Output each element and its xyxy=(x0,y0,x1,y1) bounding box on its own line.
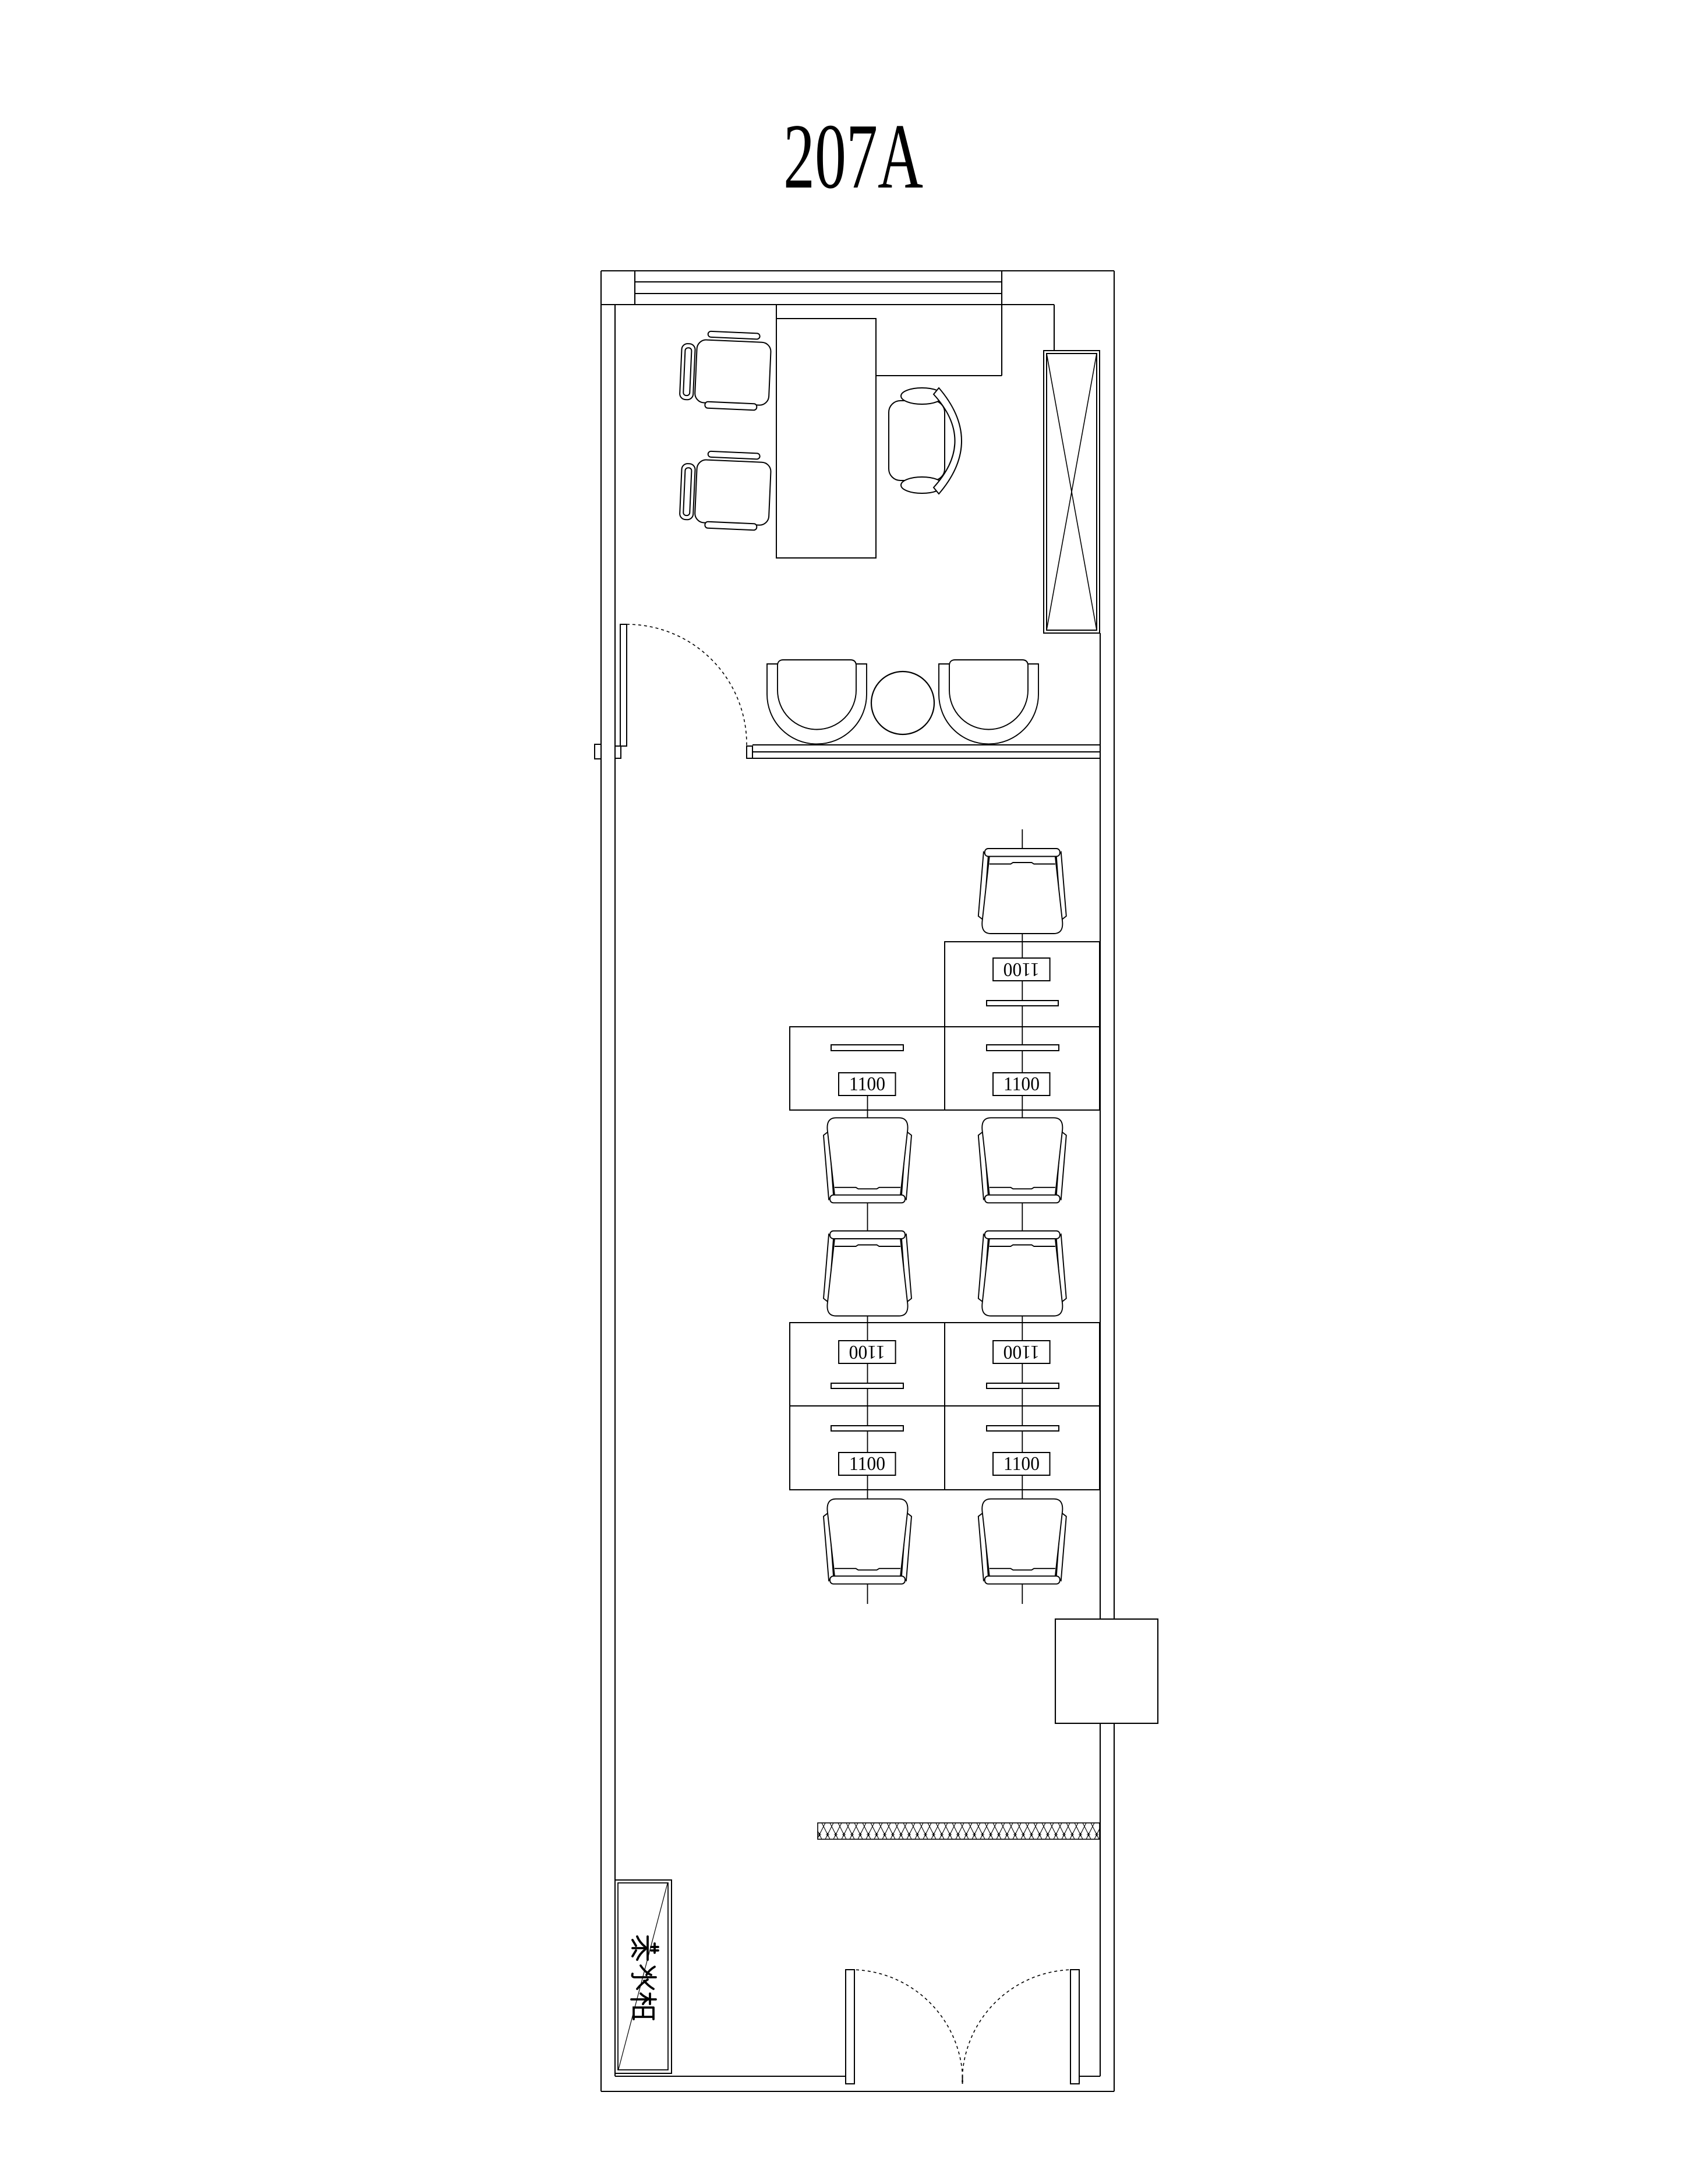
svg-text:1100: 1100 xyxy=(1003,959,1040,980)
svg-text:1100: 1100 xyxy=(1003,1341,1040,1363)
svg-text:1100: 1100 xyxy=(1003,1073,1040,1095)
svg-text:1100: 1100 xyxy=(849,1453,885,1475)
svg-text:1100: 1100 xyxy=(849,1341,885,1363)
svg-text:207A: 207A xyxy=(783,104,923,208)
svg-text:1100: 1100 xyxy=(1003,1453,1040,1475)
svg-text:1100: 1100 xyxy=(849,1073,885,1095)
